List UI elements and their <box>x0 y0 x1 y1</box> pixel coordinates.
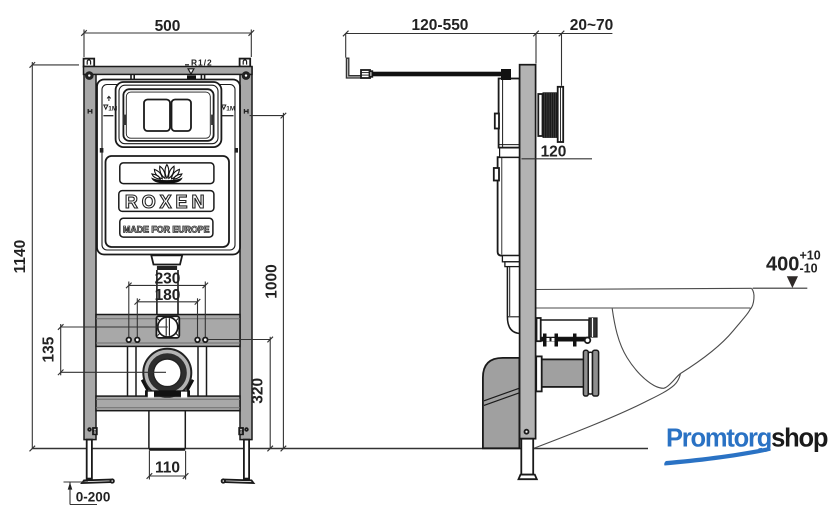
svg-text:1M: 1M <box>108 105 117 112</box>
svg-text:0-200: 0-200 <box>76 489 111 504</box>
svg-text:Promtorgshop: Promtorgshop <box>666 425 828 453</box>
svg-text:+10: +10 <box>800 249 821 263</box>
svg-text:500: 500 <box>155 18 181 35</box>
svg-text:320: 320 <box>250 378 267 404</box>
svg-text:120-550: 120-550 <box>412 17 469 34</box>
svg-text:230: 230 <box>155 270 181 287</box>
svg-text:180: 180 <box>155 287 181 304</box>
svg-text:120: 120 <box>541 144 567 161</box>
svg-text:135: 135 <box>41 336 58 362</box>
svg-text:ROXEN: ROXEN <box>125 192 209 212</box>
svg-text:-10: -10 <box>800 262 818 276</box>
svg-text:MADE FOR EUROPE: MADE FOR EUROPE <box>123 225 210 235</box>
svg-text:20~70: 20~70 <box>570 17 614 34</box>
svg-text:1000: 1000 <box>264 264 281 298</box>
svg-text:R1/2: R1/2 <box>191 57 213 67</box>
svg-text:1M: 1M <box>226 105 235 112</box>
svg-text:1140: 1140 <box>12 240 29 274</box>
svg-text:400: 400 <box>766 254 799 276</box>
svg-text:110: 110 <box>155 459 180 476</box>
